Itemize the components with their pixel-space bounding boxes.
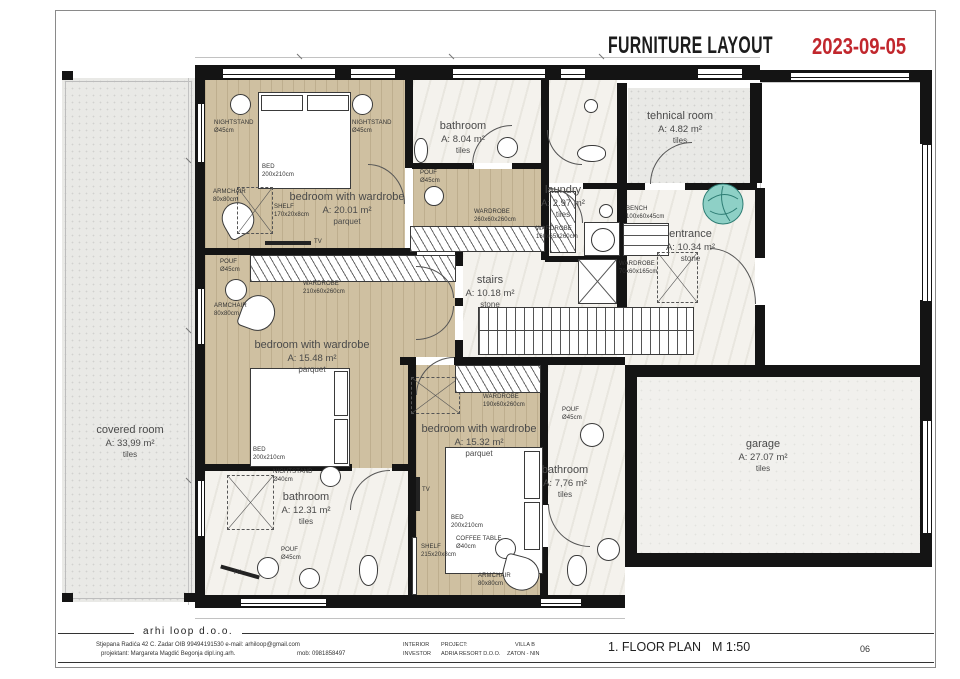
window [197,288,205,345]
stairs-upper-flight [578,259,617,304]
room-label-laundry: laundry A: 2.97 m² tiles [518,184,608,220]
washing-machine-icon [584,222,620,256]
wall [755,188,765,258]
room-area: A: 2.97 m² [518,198,608,210]
room-name: bathroom [521,464,609,478]
furniture-label-pouf: POUF Ø45cm [220,259,240,275]
furniture-label-pouf: POUF Ø45cm [281,547,301,563]
furniture-label-shelf: SHELF 215x20x8cm [421,544,456,560]
room-floor: tiles [261,517,351,527]
room-area: A: 15.48 m² [227,353,397,365]
wardrobe [410,226,545,252]
room-floor: parquet [227,365,397,375]
room-name: bathroom [418,120,508,134]
furniture-label-tv: TV [314,239,322,247]
window [197,480,205,537]
window [922,144,932,302]
window [790,72,910,81]
pouf [257,557,279,579]
furniture-label-armchair: ARMCHAIR 80x80cm [213,189,246,205]
wall [920,82,932,144]
designer: projektant: Margareta Magdić Begonja dip… [101,651,235,657]
room-area: A: 27.07 m² [713,452,813,464]
wall [625,553,932,567]
furniture-label-armchair: ARMCHAIR 80x80cm [214,303,247,319]
wall [920,300,932,366]
room-label-bathroom-1: bathroom A: 8.04 m² tiles [418,120,508,156]
room-label-garage: garage A: 27.07 m² tiles [713,438,813,474]
entry-door-opening [755,258,765,305]
page-title: FURNITURE LAYOUT [608,32,773,60]
furniture-label-bench: BENCH 100x60x45cm [626,206,664,222]
tv [265,241,311,245]
stairs-treads [478,307,694,355]
window [560,68,586,79]
wall [392,464,408,471]
toilet [567,555,587,586]
wall [625,365,637,565]
window [197,103,205,163]
project-value: VILLA B [515,642,535,648]
shelf [412,537,417,595]
wall [412,163,474,169]
furniture-label-wardrobe: WARDROBE 260x60x260cm [474,209,516,225]
furniture-label-bed: BED 200x210cm [262,164,294,180]
window [240,598,327,607]
wall [195,248,417,255]
company-name: arhi loop d.o.o. [134,626,242,637]
room-label-entrance: entrance A: 10.34 m² stone [643,228,738,264]
room-name: bathroom [261,491,351,505]
wall [405,80,413,168]
toilet [359,555,378,586]
window [697,68,743,79]
pillow [261,95,303,111]
room-area: A: 12.31 m² [261,505,351,517]
floor-plan-sheet: { "header": { "title": "FURNITURE LAYOUT… [0,0,960,679]
window [452,68,546,79]
room-name: stairs [445,274,535,288]
room-name: bedroom with wardrobe [414,423,544,437]
room-floor: tiles [713,464,813,474]
furniture-label-pouf: POUF Ø45cm [420,170,440,186]
furniture-label-armchair: ARMCHAIR 80x80cm [478,573,511,589]
post [62,71,73,80]
furniture-label-pouf: POUF Ø45cm [562,407,582,423]
furniture-label-wardrobe: WARDROBE 210x60x260cm [303,281,345,297]
door-opening [455,306,463,340]
room-label-bathroom-3: bathroom A: 7,76 m² tiles [521,464,609,500]
room-floor: tiles [518,210,608,220]
room-label-bedroom-2: bedroom with wardrobe A: 15.48 m² parque… [227,339,397,375]
window [350,68,396,79]
location: ZATON - NIN [507,651,540,657]
room-name: entrance [643,228,738,242]
terrace-outline [760,82,932,367]
room-area: A: 33,99 m² [80,438,180,450]
nightstand [320,466,341,487]
footer-bottom-line [58,662,934,663]
furniture-label-bed: BED 200x210cm [253,447,285,463]
dimension-line [195,618,625,619]
room-name: laundry [518,184,608,198]
room-floor: stone [445,300,535,310]
room-floor: parquet [414,449,544,459]
furniture-label-wardrobe: WARDROBE 70x60x165cm [619,261,657,277]
date-stamp: 2023-09-05 [812,33,906,60]
furniture-label-bed: BED 200x210cm [451,515,483,531]
furniture-label-coffee-table: COFFEE TABLE Ø40cm [456,536,502,552]
mobile: mob: 0981858497 [297,651,345,657]
room-label-bedroom-3: bedroom with wardrobe A: 15.32 m² parque… [414,423,544,459]
nightstand [230,94,251,115]
post [184,593,195,602]
interior-label: INTERIOR [403,642,429,648]
nightstand [352,94,373,115]
room-name: garage [713,438,813,452]
pillow [307,95,349,111]
sink [299,568,320,589]
furniture-label-tv: TV [422,487,430,495]
room-area: A: 4.82 m² [630,124,730,136]
room-name: tehnical room [630,110,730,124]
pillow [524,502,540,550]
window [222,68,336,79]
furniture-label-shelf: SHELF 170x20x8cm [274,204,309,220]
furniture-label-wardrobe: WARDROBE 190x60x260cm [483,394,525,410]
furniture-label-wardrobe: WARDROBE 160x65x260cm [536,226,578,242]
dimension-line [195,57,760,58]
stairs-handrail [478,330,694,331]
pillow [334,371,348,416]
room-area: A: 10.34 m² [643,242,738,254]
room-label-covered-room: covered room A: 33,99 m² tiles [80,424,180,460]
investor-label: INVESTOR [403,651,431,657]
room-area: A: 10.18 m² [445,288,535,300]
room-floor: tiles [521,490,609,500]
sink [597,538,620,561]
stairs-break-lines [579,260,616,303]
room-label-tehnical-room: tehnical room A: 4.82 m² tiles [630,110,730,146]
room-name: bedroom with wardrobe [227,339,397,353]
room-label-stairs: stairs A: 10.18 m² stone [445,274,535,310]
wardrobe [455,365,541,393]
furniture-label-tv: TV [233,570,241,578]
pillow [334,419,348,464]
room-area: A: 15.32 m² [414,437,544,449]
company-address: Stjepana Radića 42 C. Zadar OIB 99494191… [96,642,300,648]
wall [755,305,765,365]
project-label: PROJECT: [441,642,468,648]
room-name: bedroom with wardrobe [262,191,432,205]
wall [750,83,762,183]
post [62,593,73,602]
shower-icon [584,99,598,113]
room-label-bathroom-2: bathroom A: 12.31 m² tiles [261,491,351,527]
tv [416,477,420,511]
pouf [225,279,247,301]
room-name: covered room [80,424,180,438]
plan-scale: M 1:50 [712,640,750,654]
room-area: A: 8.04 m² [418,134,508,146]
window [540,598,582,607]
room-floor: tiles [418,146,508,156]
dimension-line [188,78,189,605]
garage-door [922,420,932,534]
wall [617,83,627,188]
room-floor: tiles [80,450,180,460]
sheet-number: 06 [860,644,870,654]
room-area: A: 7,76 m² [521,478,609,490]
furniture-label-nightstand: NIGHTSTAND Ø40cm [273,469,313,485]
door-opening [645,183,685,190]
wall [625,365,932,377]
floor-covered-room [62,78,195,602]
investor-value: ADRIA RESORT D.O.O. [441,651,500,657]
pouf [580,423,604,447]
furniture-label-nightstand: NIGHTSTAND Ø45cm [214,120,254,136]
plant-icon [700,181,746,227]
plan-title: 1. FLOOR PLAN [608,640,701,654]
furniture-label-nightstand: NIGHTSTAND Ø45cm [352,120,392,136]
room-floor: tiles [630,136,730,146]
